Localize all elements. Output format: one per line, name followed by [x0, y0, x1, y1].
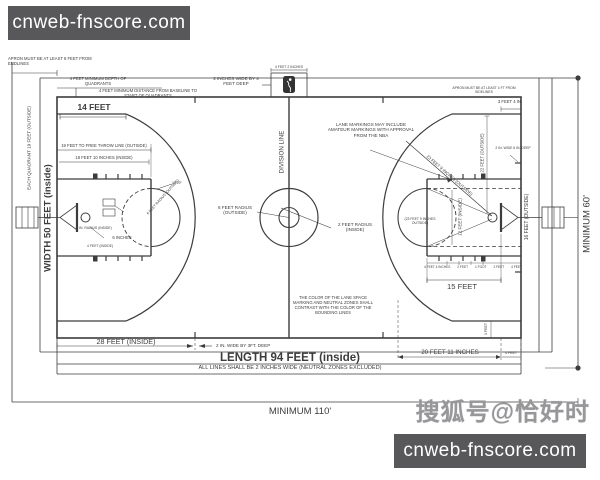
label-four-feet: 4 FEET	[499, 351, 523, 355]
label-four-feet-inside: 4 FEET (INSIDE)	[78, 244, 122, 248]
lane-mark-dim: 4 FEET	[511, 266, 522, 270]
label-amateur-note: LANE MARKINGS MAY INCLUDE AMATEUR MARKIN…	[325, 122, 417, 138]
lane-mark-dim: 2 FEET	[457, 266, 468, 270]
watermark-sohu: 搜狐号@恰好时	[300, 392, 590, 427]
label-three-feet: 3 FEET	[484, 323, 488, 335]
label-twenty-ft-eleven: 20 FEET 11 INCHES	[408, 349, 492, 356]
label-minimum-60: MINIMUM 60'	[581, 195, 592, 253]
label-apron-endlines: APRON MUST BE AT LEAST 8 FEET FROM ENDLI…	[8, 57, 100, 67]
backstop-structures	[16, 207, 578, 228]
label-fifteen-feet: 15 FEET	[430, 283, 494, 292]
label-each-quadrant: EACH QUADRANT 19 FEET (OUTSIDE)	[26, 106, 31, 190]
label-division-line: DIVISION LINE	[278, 131, 285, 174]
label-sixteen-feet-outside: 16 FEET (OUTSIDE)	[525, 194, 531, 241]
label-twelve-feet-inside: 12 FEET (INSIDE)	[457, 198, 462, 236]
lane-mark-dim: 2 FEET	[493, 266, 504, 270]
label-six-inches: 6 INCHES	[104, 236, 140, 241]
label-free-throw-outside: 19 FEET TO FREE THROW LINE (OUTSIDE)	[60, 144, 148, 149]
label-length-94-feet: LENGTH 94 FEET (inside)	[195, 352, 385, 366]
watermark-site-top: cnweb-fnscore.com	[8, 6, 190, 40]
nba-logo-icon	[283, 76, 295, 93]
lane-mark-dim: 1 FOOT	[475, 266, 487, 270]
label-rim-radius: 9 IN. RADIUS (INSIDE)	[74, 226, 114, 230]
label-center-circle-outer: 6 FEET RADIUS (OUTSIDE)	[212, 205, 258, 216]
label-twenty-eight-feet: 28 FEET (INSIDE)	[78, 338, 174, 346]
label-endline-hash: 2 IN. WIDE 6 IN. DEEP	[492, 146, 534, 150]
label-three-point-radius-h: (23 FEET 9 INCHES OUTSIDE)	[396, 217, 444, 225]
label-free-throw-inside: 18 FEET 10 INCHES (INSIDE)	[62, 156, 146, 161]
label-division-hash: 2 INCHES WIDE BY 4 FEET DEEP	[210, 76, 262, 87]
label-quadrant-distance: 4 FEET MINIMUM DISTANCE FROM BASELINE TO…	[92, 89, 204, 99]
watermark-site-bottom: cnweb-fnscore.com	[394, 434, 586, 468]
court-dimensions-diagram: APRON MUST BE AT LEAST 8 FEET FROM ENDLI…	[0, 0, 600, 480]
label-fourteen-feet: 14 FEET	[64, 103, 124, 113]
label-backboard-face: 3 FEET 4 IN.	[484, 100, 536, 105]
lane-space-marks-dims: 4 FEET 4 INCHES 2 FEET 1 FOOT 2 FEET 4 F…	[424, 266, 522, 270]
label-quadrant-depth: 4 FEET MINIMUM DEPTH OF QUADRANTS	[58, 77, 138, 87]
label-neutral-zone: 2 IN. WIDE BY 3FT. DEEP	[216, 343, 296, 348]
label-all-lines-note: ALL LINES SHALL BE 2 INCHES WIDE (NEUTRA…	[140, 365, 440, 372]
right-half-court	[370, 107, 521, 361]
label-twenty-two-feet: 22 FEET (OUTSIDE)	[481, 133, 486, 172]
label-lane-color-note: THE COLOR OF THE LANE SPACE MARKING AND …	[292, 296, 374, 316]
label-center-circle-inner: 2 FEET RADIUS (INSIDE)	[330, 222, 380, 233]
label-apron-sidelines: APRON MUST BE AT LEAST 4 FT FROM SIDELIN…	[448, 86, 520, 94]
label-width-50-feet: WIDTH 50 FEET (inside)	[42, 164, 53, 272]
label-logo-dim: 4 FEET 2 INCHES	[265, 65, 313, 69]
lane-mark-dim: 4 FEET 4 INCHES	[424, 266, 450, 270]
